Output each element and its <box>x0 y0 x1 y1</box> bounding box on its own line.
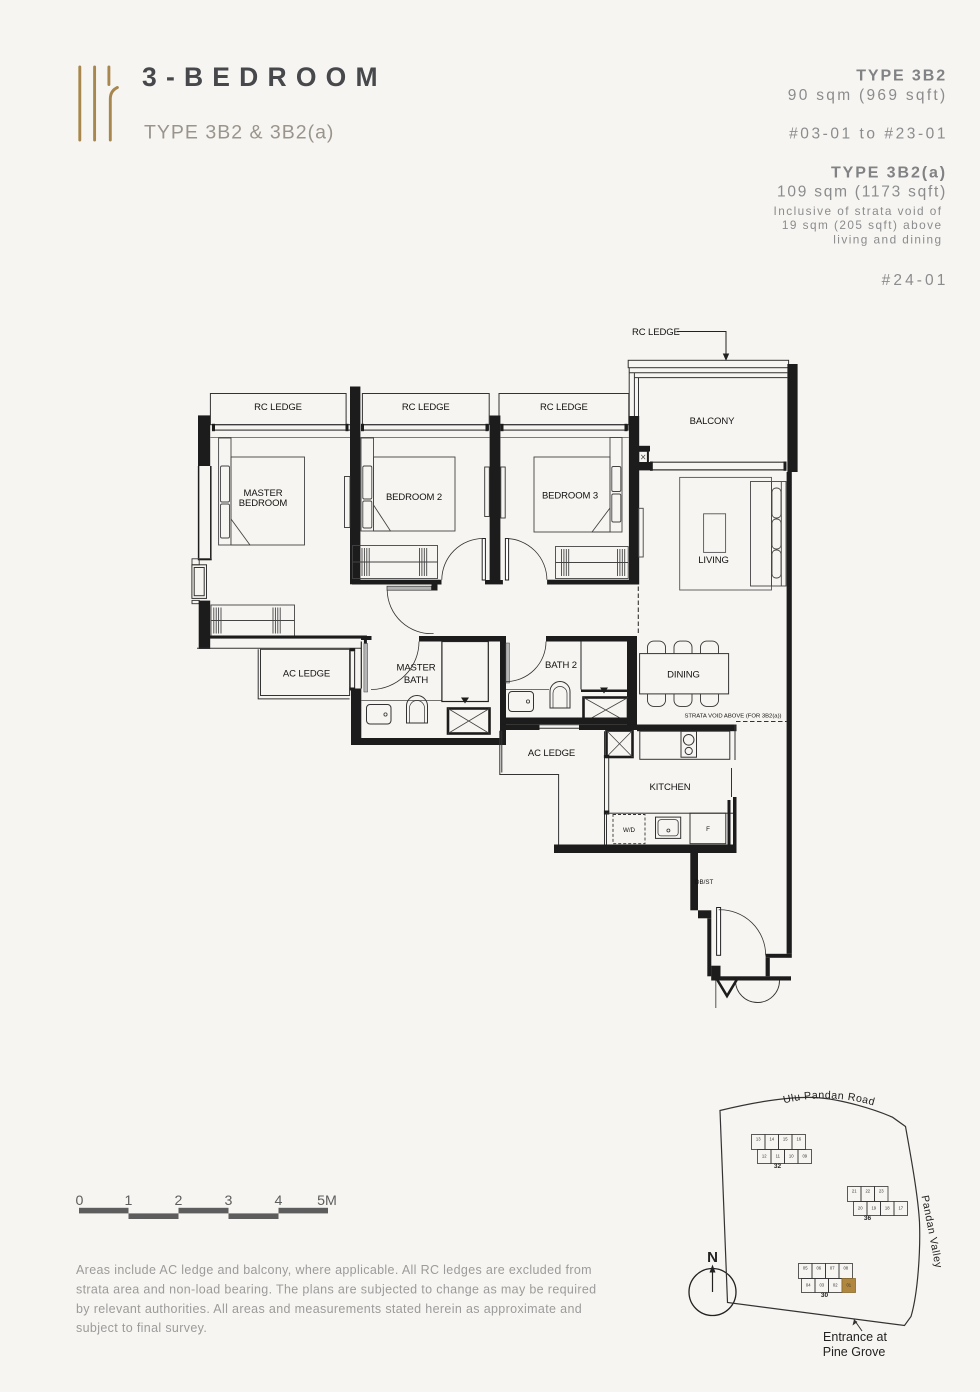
svg-text:TYPE 3B2 & 3B2(a): TYPE 3B2 & 3B2(a) <box>144 122 334 144</box>
svg-text:03: 03 <box>819 1283 824 1288</box>
svg-text:RC LEDGE: RC LEDGE <box>540 402 588 413</box>
svg-text:21: 21 <box>852 1189 857 1194</box>
svg-text:BEDROOM 3: BEDROOM 3 <box>542 491 598 502</box>
svg-text:strata area and non-load beari: strata area and non-load bearing. The pl… <box>76 1282 596 1296</box>
svg-text:subject to final survey.: subject to final survey. <box>76 1321 207 1335</box>
svg-text:living and dining: living and dining <box>833 232 942 246</box>
svg-text:AC LEDGE: AC LEDGE <box>283 669 330 680</box>
svg-text:MASTER: MASTER <box>397 663 436 674</box>
svg-text:13: 13 <box>756 1137 761 1142</box>
svg-text:19 sqm (205 sqft) above: 19 sqm (205 sqft) above <box>782 218 943 232</box>
svg-text:05: 05 <box>803 1266 808 1271</box>
svg-text:90 sqm (969 sqft): 90 sqm (969 sqft) <box>788 87 948 104</box>
svg-text:F: F <box>706 826 710 833</box>
svg-text:AC LEDGE: AC LEDGE <box>528 748 575 759</box>
svg-text:06: 06 <box>816 1266 821 1271</box>
svg-text:TYPE 3B2: TYPE 3B2 <box>856 68 947 85</box>
svg-text:30: 30 <box>821 1292 829 1299</box>
svg-text:RC LEDGE: RC LEDGE <box>402 402 450 413</box>
svg-text:36: 36 <box>864 1215 872 1222</box>
svg-text:by relevant authorities. All a: by relevant authorities. All areas and m… <box>76 1302 582 1316</box>
svg-text:DINING: DINING <box>667 670 700 681</box>
svg-text:22: 22 <box>865 1189 870 1194</box>
svg-text:N: N <box>707 1249 718 1266</box>
svg-text:109 sqm (1173 sqft): 109 sqm (1173 sqft) <box>777 184 947 201</box>
svg-text:32: 32 <box>774 1163 782 1170</box>
svg-text:RC LEDGE: RC LEDGE <box>632 327 680 338</box>
svg-text:12: 12 <box>762 1154 767 1159</box>
svg-text:BATH: BATH <box>404 675 428 686</box>
svg-text:0: 0 <box>76 1193 84 1209</box>
svg-text:02: 02 <box>833 1283 838 1288</box>
svg-text:RC LEDGE: RC LEDGE <box>254 402 302 413</box>
svg-text:Inclusive of strata void of: Inclusive of strata void of <box>774 204 943 218</box>
svg-text:4: 4 <box>275 1193 283 1209</box>
svg-text:09: 09 <box>802 1154 807 1159</box>
svg-text:LIVING: LIVING <box>698 555 729 566</box>
svg-text:07: 07 <box>830 1266 835 1271</box>
svg-text:08: 08 <box>843 1266 848 1271</box>
svg-text:2: 2 <box>175 1193 183 1209</box>
svg-text:14: 14 <box>769 1137 774 1142</box>
svg-text:#03-01 to #23-01: #03-01 to #23-01 <box>789 126 948 143</box>
svg-text:20: 20 <box>858 1206 863 1211</box>
svg-text:W/D: W/D <box>623 827 636 834</box>
svg-text:STRATA VOID ABOVE (FOR 3B2(a)): STRATA VOID ABOVE (FOR 3B2(a)) <box>685 714 782 720</box>
svg-text:11: 11 <box>776 1154 781 1159</box>
svg-text:#24-01: #24-01 <box>882 272 949 289</box>
svg-text:23: 23 <box>879 1189 884 1194</box>
svg-text:BATH 2: BATH 2 <box>545 660 577 671</box>
svg-text:Pine Grove: Pine Grove <box>823 1345 886 1359</box>
svg-text:3-BEDROOM: 3-BEDROOM <box>142 62 387 92</box>
svg-text:Areas include AC ledge and bal: Areas include AC ledge and balcony, wher… <box>76 1263 592 1277</box>
svg-text:TYPE 3B2(a): TYPE 3B2(a) <box>831 164 947 181</box>
svg-text:18: 18 <box>885 1206 890 1211</box>
svg-text:1: 1 <box>125 1193 133 1209</box>
svg-text:17: 17 <box>898 1206 903 1211</box>
svg-text:19: 19 <box>871 1206 876 1211</box>
svg-text:5M: 5M <box>317 1193 337 1209</box>
svg-text:BEDROOM: BEDROOM <box>239 498 288 509</box>
svg-text:BALCONY: BALCONY <box>690 416 735 427</box>
svg-text:KITCHEN: KITCHEN <box>650 782 691 793</box>
svg-text:10: 10 <box>789 1154 794 1159</box>
svg-text:01: 01 <box>846 1283 851 1288</box>
svg-text:DB/ST: DB/ST <box>695 879 713 886</box>
svg-text:Entrance at: Entrance at <box>823 1330 887 1344</box>
svg-text:15: 15 <box>783 1137 788 1142</box>
svg-text:04: 04 <box>806 1283 811 1288</box>
svg-text:BEDROOM 2: BEDROOM 2 <box>386 492 442 503</box>
svg-text:3: 3 <box>225 1193 233 1209</box>
svg-text:16: 16 <box>796 1137 801 1142</box>
